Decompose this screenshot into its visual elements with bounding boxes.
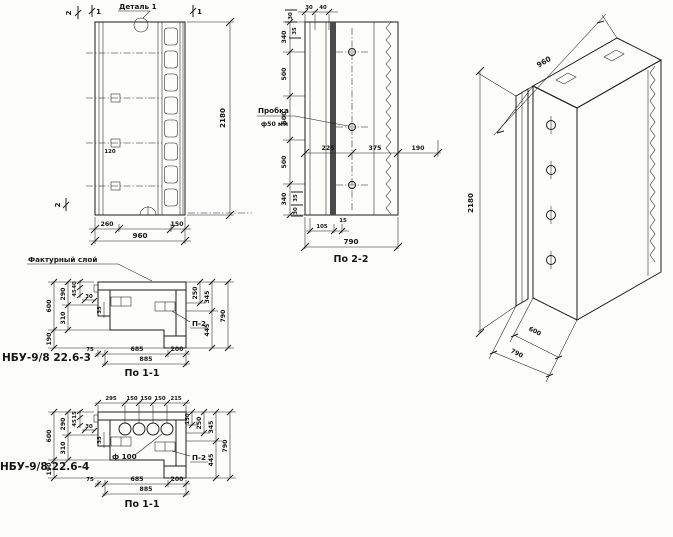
corrugated-edge (386, 22, 391, 214)
view-title-1-1-a: По 1-1 (125, 368, 160, 379)
dim-250-a: 250 (192, 286, 199, 300)
dim-35-left-label: 35 (292, 27, 298, 35)
mini-dimensions-a: 40 45 30 35 (72, 279, 104, 318)
mini-dimensions-b: 15 45 30 35 (72, 409, 104, 448)
dim-190-label: 190 (412, 145, 426, 152)
dim-790-label: 790 (343, 237, 358, 246)
top-chain-dimensions-b: 295 150 150 150 215 (95, 396, 190, 423)
dim-120-label: 120 (104, 149, 116, 155)
product-code-b: НБУ-9/8.22.6-4 (0, 461, 89, 473)
bottom-dimensions-a: 75 685 200 885 (86, 346, 190, 367)
height-dimension: 2180 (187, 18, 234, 219)
dim-600-a: 600 (46, 299, 53, 313)
dim-30-left-label: 30 (288, 12, 294, 20)
section-marks: 1 1 2 2 (53, 5, 202, 211)
dim-2180-label: 2180 (218, 108, 227, 128)
texture-leader (118, 264, 152, 281)
plug-holes (336, 49, 370, 189)
block-left-face (533, 86, 577, 320)
holes-100 (119, 423, 173, 435)
hollow-core-cells (165, 28, 178, 206)
section-mark-2-top: 2 (64, 10, 73, 15)
right-dimensions-b: 150 250 345 445 790 (185, 409, 236, 481)
dim-375-label: 375 (369, 145, 382, 152)
dim-685-b: 685 (131, 476, 144, 483)
dim-790-a: 790 (220, 309, 227, 323)
section-1-1-b-view: 295 150 150 150 215 ф 100 П-2 15 45 (0, 396, 236, 510)
detail-leader (143, 11, 150, 18)
section-2-2-view: 30 40 30 35 340 500 500 500 340 Пробка ф… (257, 5, 442, 265)
bottom-small-dimensions: 35 30 105 15 (291, 192, 349, 234)
mini-45-b: 45 (72, 419, 78, 427)
iso-dim-600-label: 600 (527, 326, 542, 338)
top-chain-215: 215 (170, 396, 182, 402)
top-chain-150-1: 150 (126, 396, 138, 402)
iso-depth-dimensions: 600 790 (489, 298, 577, 382)
top-chain-150-2: 150 (140, 396, 152, 402)
section-1-1-a-view: Фактурный слой П-2 40 45 30 35 (2, 255, 234, 379)
iso-width-dimension: 960 (494, 14, 617, 135)
section-outline (305, 22, 398, 215)
dim-885-b: 885 (140, 486, 153, 493)
section-mark-2-bottom: 2 (53, 202, 62, 207)
iso-dim-2180-label: 2180 (466, 193, 475, 213)
view-title-2-2: По 2-2 (334, 254, 369, 265)
block-top-face (533, 38, 661, 108)
blueprint-svg: 120 Деталь 1 1 1 2 2 260 (0, 0, 673, 537)
plate-label-b: П-2 (192, 453, 206, 462)
plate-leader-b (172, 451, 190, 456)
mini-35: 35 (97, 306, 103, 314)
dim-445-a: 445 (204, 324, 211, 337)
hole-diameter-label: ф 100 (112, 452, 137, 461)
slab-top-join (528, 86, 533, 89)
iso-plug-holes (547, 116, 556, 269)
top-recess-2 (604, 50, 624, 61)
height-chain-dimension: 340 500 500 500 340 (281, 19, 305, 218)
dim-290-b: 290 (60, 417, 67, 431)
iso-height-dimension: 2180 (466, 67, 516, 337)
dim-445-b: 445 (208, 454, 215, 467)
dim-200-a: 200 (171, 346, 185, 353)
dim-40-top-label: 40 (319, 5, 327, 11)
top-recess-1 (556, 73, 576, 84)
width-dimension: 790 (301, 217, 402, 251)
mini-30-b: 30 (85, 424, 93, 430)
chain-500-3: 500 (281, 155, 288, 169)
view-title-1-1-b: По 1-1 (125, 499, 160, 510)
product-code-a: НБУ-9/8 22.6-3 (2, 352, 91, 364)
anchor-marks (111, 94, 120, 190)
strip-nose (94, 285, 98, 292)
mini-45: 45 (72, 289, 78, 297)
dim-30-bottom-label: 30 (293, 207, 299, 215)
dim-30-top-label: 30 (305, 5, 313, 11)
texture-layer-label: Фактурный слой (28, 255, 97, 264)
blueprint-canvas: 120 Деталь 1 1 1 2 2 260 (0, 0, 673, 537)
dim-200-b: 200 (171, 476, 185, 483)
top-chain-295: 295 (105, 396, 117, 402)
plate-leader (172, 311, 190, 322)
strip-nose-b (94, 415, 98, 422)
textured-strip-b (98, 412, 186, 420)
section-mark-1-left: 1 (96, 7, 101, 16)
section-mark-1-right: 1 (197, 7, 202, 16)
plug-label: Пробка (258, 106, 289, 115)
dim-225-label: 225 (322, 145, 335, 152)
iso-dim-960-label: 960 (535, 54, 553, 69)
iso-dim-790-label: 790 (509, 348, 524, 360)
bottom-dimensions: 260 150 960 (89, 217, 191, 245)
chain-340-top: 340 (281, 30, 288, 44)
right-dimensions-a: 250 345 445 790 (186, 279, 234, 351)
chain-500-1: 500 (281, 67, 288, 81)
detail-circle (134, 18, 148, 32)
dim-685-a: 685 (131, 346, 144, 353)
mini-30: 30 (85, 294, 93, 300)
dim-35-bottom-label: 35 (293, 194, 299, 202)
dim-960-label: 960 (132, 231, 147, 240)
bottom-dimensions-b: 75 685 200 885 (86, 476, 190, 497)
dim-600-b: 600 (46, 429, 53, 443)
chain-340-bottom: 340 (281, 192, 288, 206)
dim-15-label: 15 (339, 218, 347, 224)
textured-strip (98, 282, 186, 290)
dim-310-b: 310 (60, 441, 67, 455)
top-chain-150-3: 150 (154, 396, 166, 402)
joint-strip (330, 22, 336, 215)
dim-885-a: 885 (140, 356, 153, 363)
dim-310-a: 310 (60, 311, 67, 325)
dim-150-b: 150 (185, 413, 191, 425)
dim-250-b: 250 (196, 416, 203, 430)
dim-150-label: 150 (171, 221, 185, 228)
mid-dimensions: 225 375 190 (301, 140, 442, 157)
hole-leader (135, 434, 162, 455)
front-elevation-view: 120 Деталь 1 1 1 2 2 260 (53, 2, 252, 245)
isometric-view: 960 2180 600 790 (466, 14, 661, 382)
detail-callout-label: Деталь 1 (119, 2, 157, 11)
dim-345-a: 345 (204, 291, 211, 304)
dim-105-label: 105 (316, 224, 328, 230)
dim-345-b: 345 (208, 421, 215, 434)
dim-790-b: 790 (222, 439, 229, 453)
plug-diameter-label: ф50 мм (261, 120, 288, 128)
dim-290-a: 290 (60, 287, 67, 301)
iso-corrugated-edge (650, 66, 655, 262)
block-front-face (577, 60, 661, 320)
dim-260-label: 260 (101, 221, 115, 228)
dim-190-a: 190 (46, 332, 53, 346)
dim-75-b: 75 (86, 477, 94, 483)
mini-35-b: 35 (97, 436, 103, 444)
